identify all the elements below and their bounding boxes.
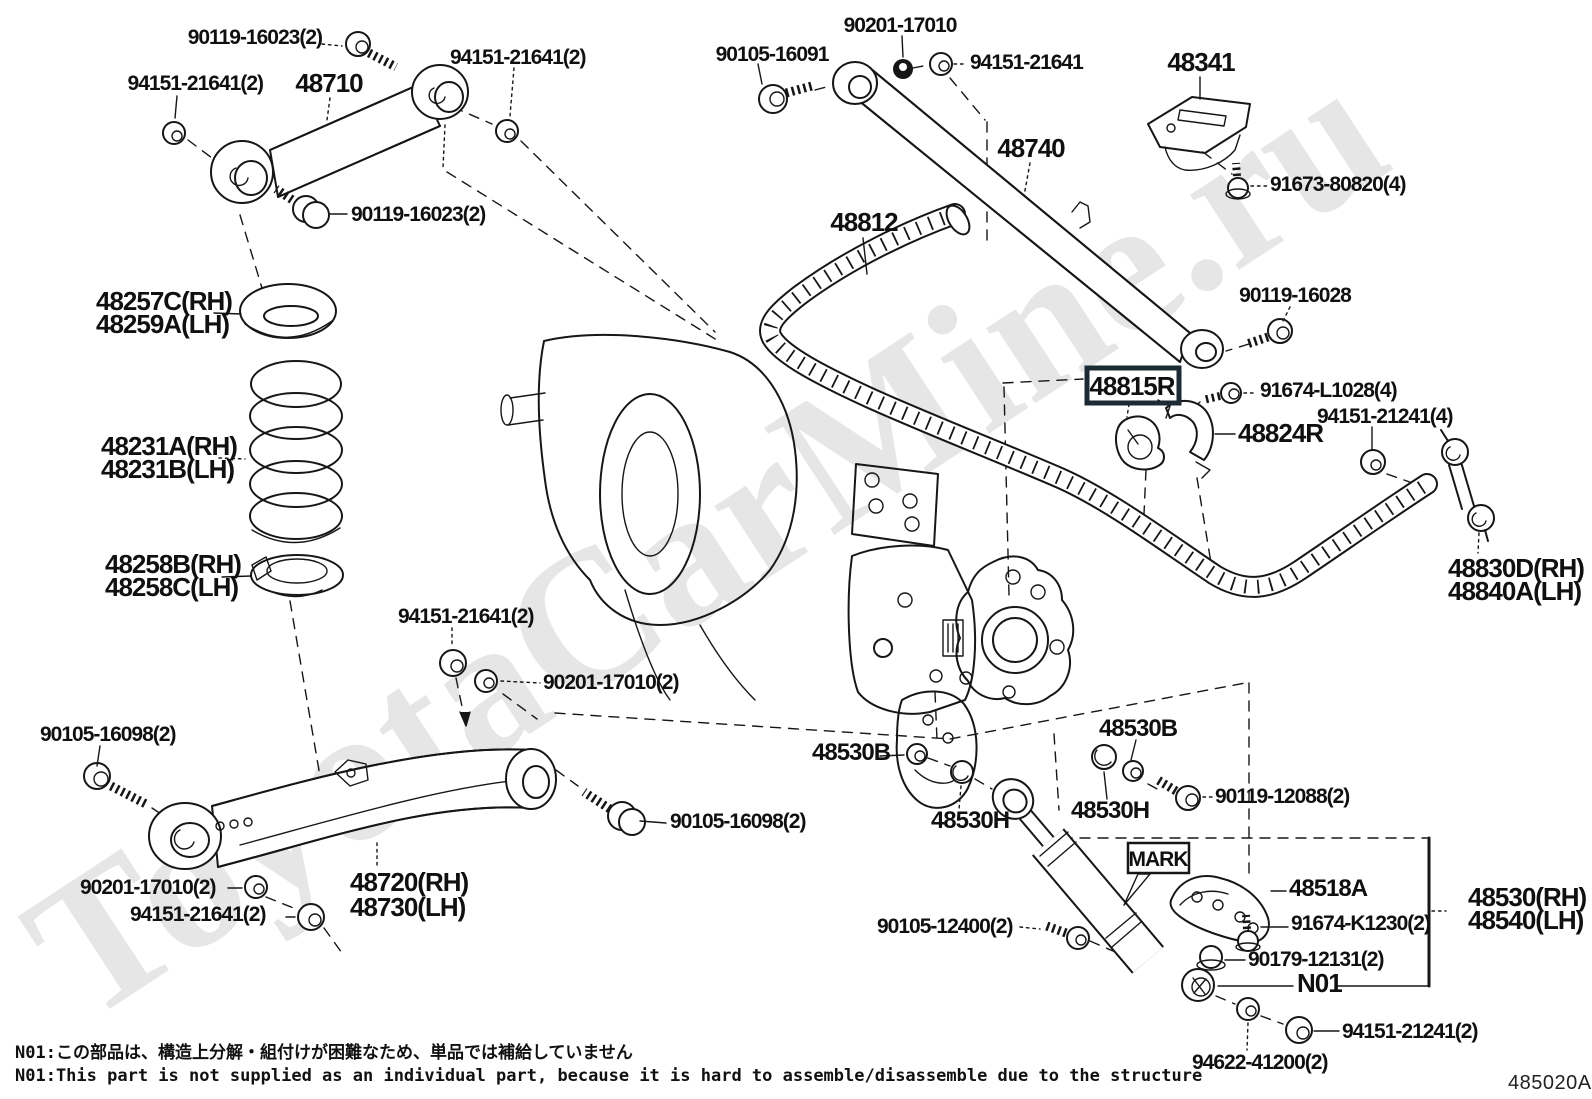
stabilizer-bracket bbox=[1158, 400, 1213, 478]
bolt-90105-16091 bbox=[759, 85, 812, 113]
nut-90201-17010-a bbox=[893, 59, 913, 79]
label-48540: 48540(LH) bbox=[1468, 905, 1584, 935]
bolt-90105-16098-b bbox=[584, 792, 645, 835]
washer-94151-21641 bbox=[930, 53, 952, 75]
washer-94622-41200 bbox=[1237, 998, 1259, 1020]
label-48258C: 48258C(LH) bbox=[105, 572, 238, 602]
mark-arrow bbox=[1124, 874, 1150, 905]
diagram-canvas: ToyotaCarMine.ru bbox=[0, 0, 1592, 1099]
label-48840A: 48840A(LH) bbox=[1448, 576, 1581, 606]
nut-94151-21641-c bbox=[440, 650, 466, 676]
bolt-90119-12088 bbox=[1158, 780, 1200, 810]
nut-94151-21241-b bbox=[1286, 1017, 1312, 1043]
bolt-90119-16028 bbox=[1247, 319, 1292, 344]
footnote-english: N01:This part is not supplied as an indi… bbox=[15, 1066, 1202, 1086]
label-90119-16028: 90119-16028 bbox=[1239, 284, 1352, 307]
nut-90179-12131 bbox=[1197, 946, 1225, 970]
label-94151-21641-d: 94151-21641(2) bbox=[130, 903, 265, 926]
label-48812: 48812 bbox=[830, 207, 898, 237]
bushing-48530H-a bbox=[951, 761, 973, 783]
footnote-japanese: N01:この部品は、構造上分解・組付けが困難なため、単品では補給していません bbox=[15, 1042, 633, 1063]
label-48815R: 48815R bbox=[1089, 371, 1175, 401]
footer: N01:この部品は、構造上分解・組付けが困難なため、単品では補給していません N… bbox=[15, 1042, 1592, 1094]
stabilizer-link bbox=[1441, 430, 1494, 541]
label-48530H-b: 48530H bbox=[1071, 797, 1149, 824]
spring-upper-insulator bbox=[240, 284, 336, 338]
label-90201-17010-a: 90201-17010 bbox=[844, 14, 957, 37]
label-48259A: 48259A(LH) bbox=[96, 309, 229, 339]
bushing-48530H-b bbox=[1092, 745, 1116, 769]
nut-94151-21641-a bbox=[163, 122, 185, 144]
nut-94151-21241-a bbox=[1361, 450, 1385, 474]
label-91673-80820: 91673-80820(4) bbox=[1270, 173, 1405, 196]
label-90201-17010-b: 90201-17010(2) bbox=[543, 671, 678, 694]
label-48710: 48710 bbox=[295, 68, 363, 98]
label-90119-16023-a: 90119-16023(2) bbox=[188, 26, 322, 49]
label-90119-16023-b: 90119-16023(2) bbox=[351, 203, 485, 226]
coil-spring bbox=[250, 361, 342, 543]
bolt-90105-12400 bbox=[1044, 925, 1089, 949]
spring-lower-insulator bbox=[251, 555, 343, 597]
label-48341: 48341 bbox=[1167, 47, 1235, 77]
diagram-code: 485020A bbox=[1508, 1072, 1592, 1094]
washer-90201-17010-b bbox=[245, 876, 267, 898]
nut-94151-21641-b bbox=[496, 120, 518, 142]
label-MARK: MARK bbox=[1129, 848, 1189, 871]
bolt-91674-K1230 bbox=[1236, 915, 1260, 951]
label-94151-21641-c: 94151-21641(2) bbox=[398, 605, 533, 628]
washer-90201-17010-a bbox=[475, 670, 497, 692]
label-94151-21641-top: 94151-21641 bbox=[970, 51, 1084, 74]
label-48740: 48740 bbox=[997, 133, 1065, 163]
label-94151-21241-4: 94151-21241(4) bbox=[1317, 405, 1452, 428]
label-48730: 48730(LH) bbox=[350, 892, 466, 922]
label-N01: N01 bbox=[1297, 968, 1342, 998]
label-91674-K1230: 91674-K1230(2) bbox=[1291, 912, 1430, 935]
stabilizer-bushing bbox=[1116, 416, 1164, 469]
nut-94151-21641-d bbox=[298, 904, 324, 930]
bolt-90119-16023-a bbox=[346, 32, 396, 67]
label-90105-12400: 90105-12400(2) bbox=[877, 915, 1012, 938]
label-94151-21641-a: 94151-21641(2) bbox=[128, 72, 263, 95]
label-94622-41200: 94622-41200(2) bbox=[1192, 1051, 1327, 1074]
bushing-N01 bbox=[1182, 969, 1214, 1001]
label-90105-16091: 90105-16091 bbox=[716, 43, 830, 66]
label-90105-16098-a: 90105-16098(2) bbox=[40, 723, 175, 746]
label-90119-12088: 90119-12088(2) bbox=[1215, 785, 1349, 808]
label-48530H-a: 48530H bbox=[931, 807, 1009, 834]
label-91674-L1028: 91674-L1028(4) bbox=[1260, 379, 1397, 402]
bolt-91674-L1028 bbox=[1203, 383, 1241, 403]
label-48530B-a: 48530B bbox=[812, 739, 891, 766]
parts-diagram-page: ToyotaCarMine.ru bbox=[0, 0, 1592, 1099]
label-94151-21241-2: 94151-21241(2) bbox=[1342, 1020, 1477, 1043]
label-90105-16098-b: 90105-16098(2) bbox=[670, 810, 805, 833]
washer-48530B-b bbox=[1123, 761, 1143, 781]
label-90201-17010-c: 90201-17010(2) bbox=[80, 876, 215, 899]
label-48824R: 48824R bbox=[1238, 418, 1324, 448]
label-48518A: 48518A bbox=[1289, 875, 1368, 902]
label-48530B-b: 48530B bbox=[1099, 715, 1178, 742]
label-48231B: 48231B(LH) bbox=[101, 454, 234, 484]
washer-48530B-a bbox=[907, 744, 927, 764]
label-94151-21641-b: 94151-21641(2) bbox=[450, 46, 585, 69]
